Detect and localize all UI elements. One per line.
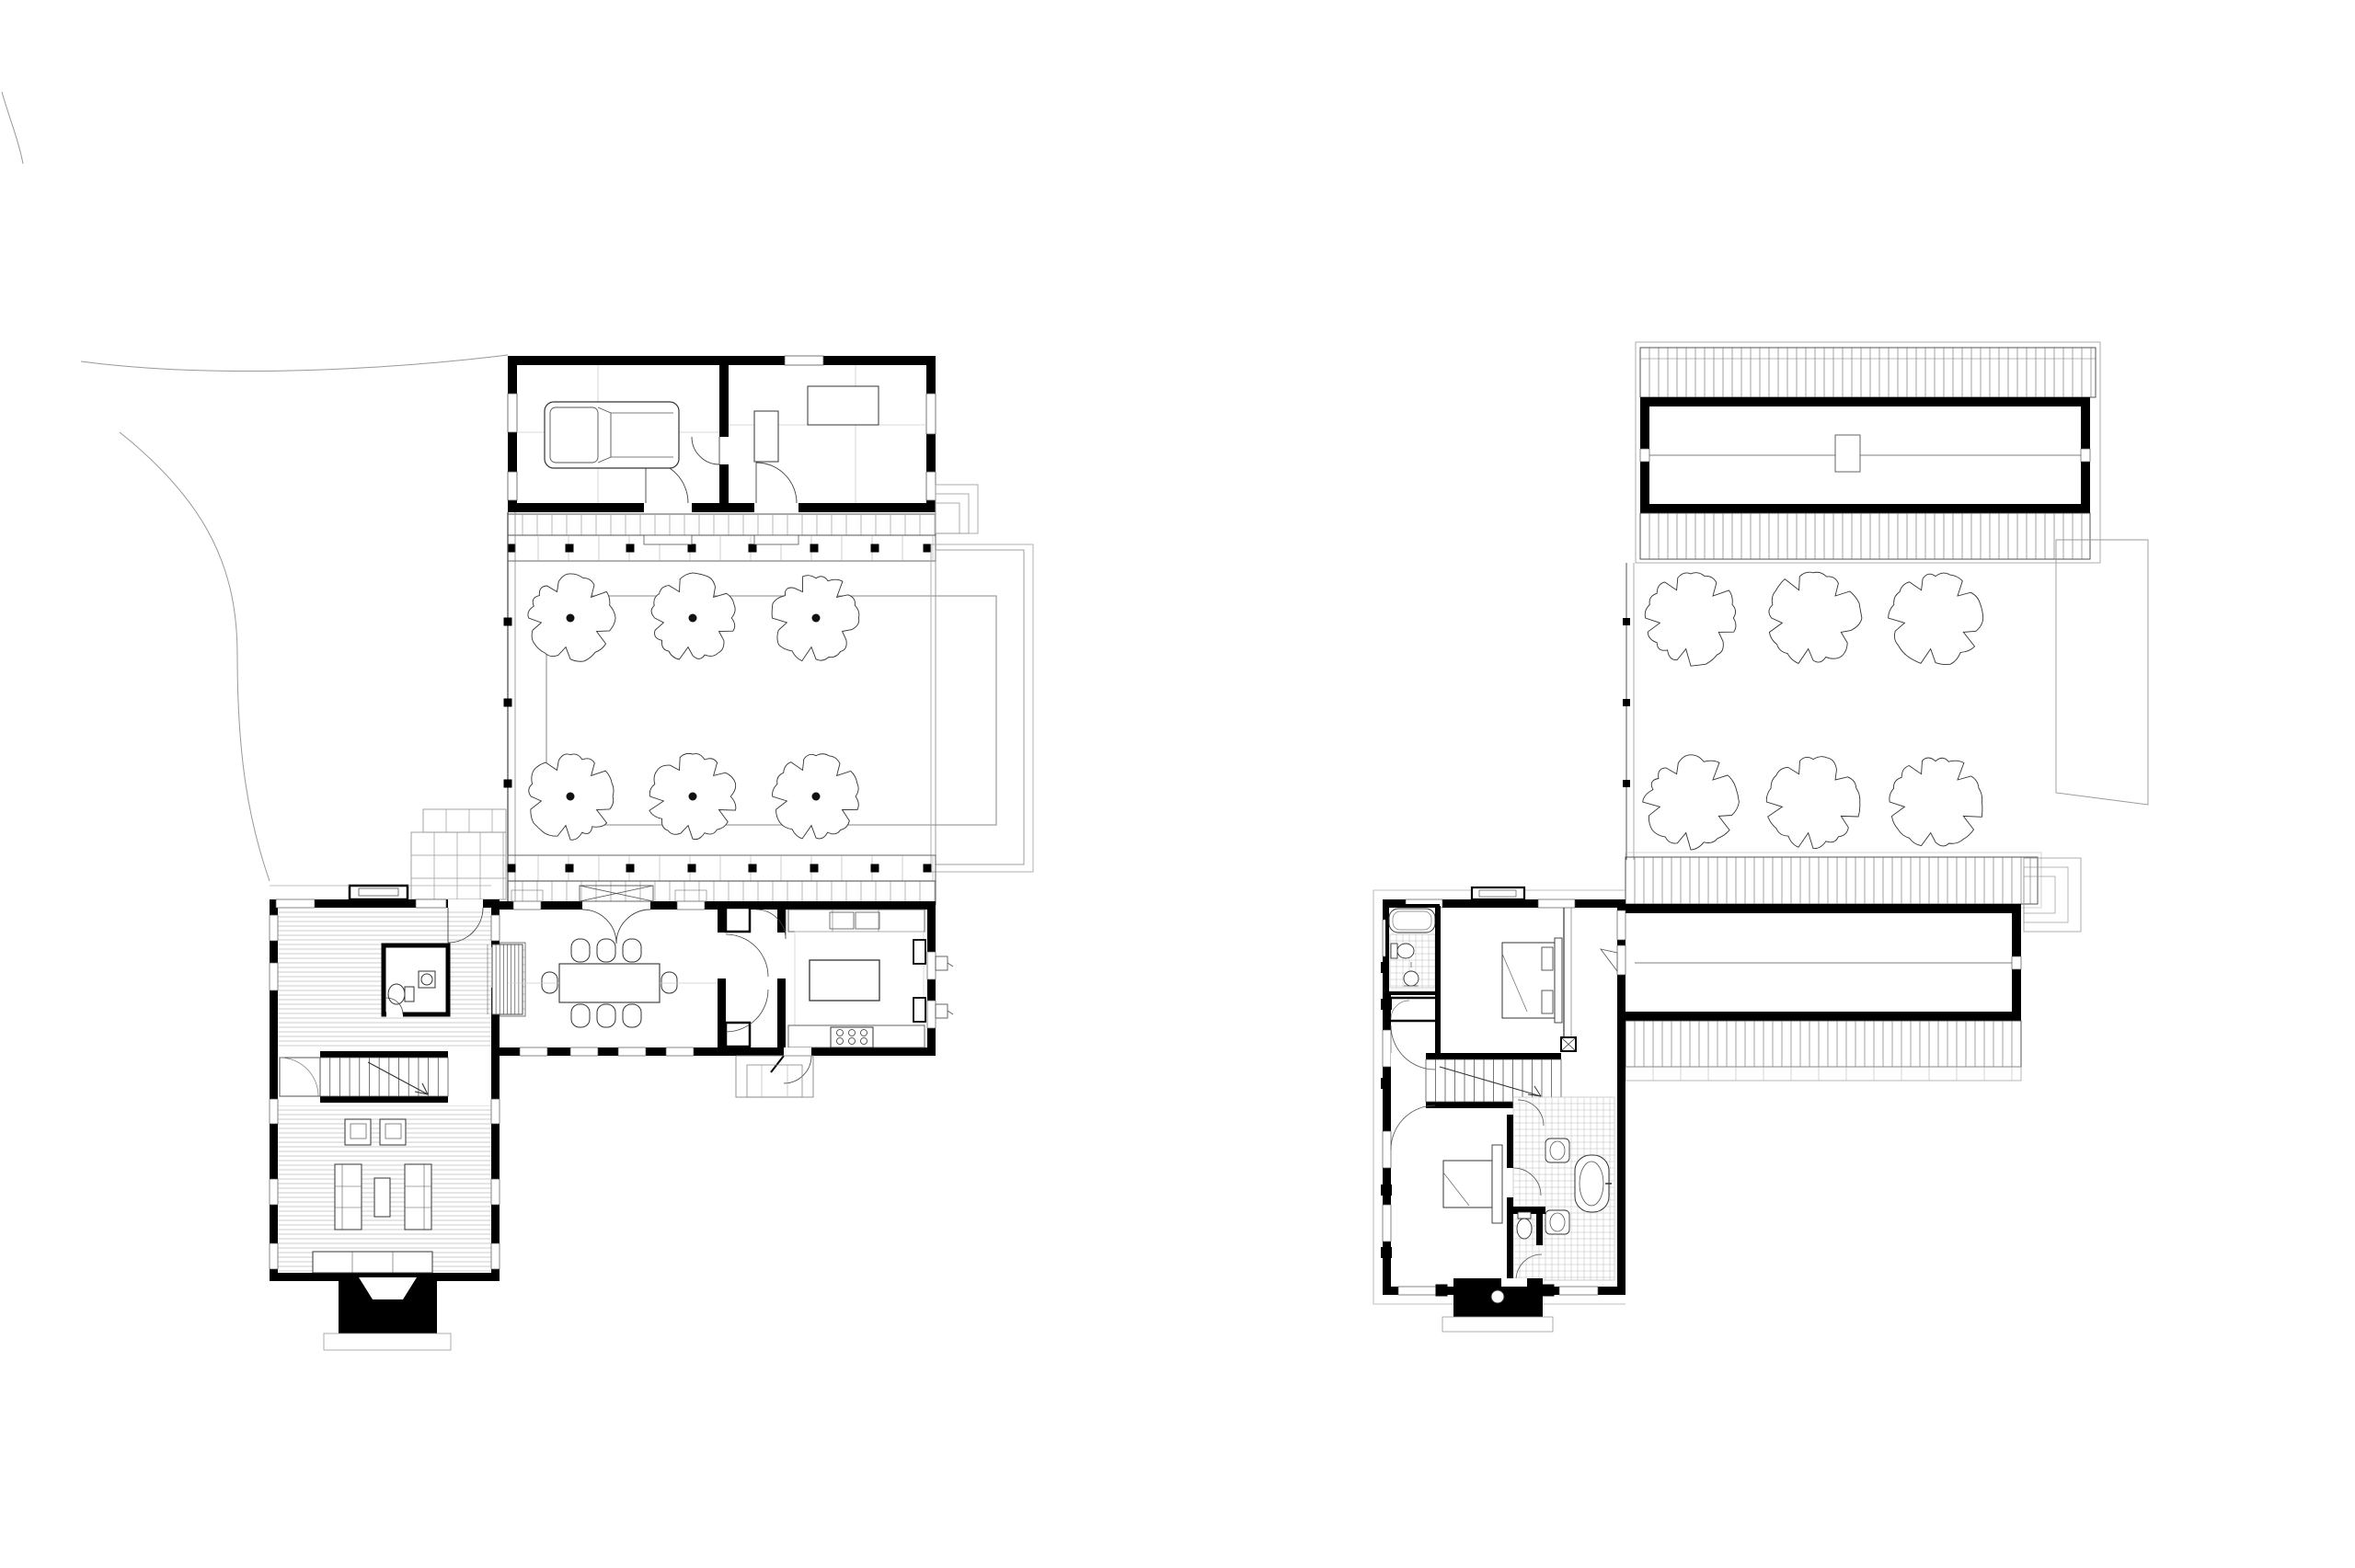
wall-pilaster [1381, 1078, 1392, 1089]
eave-band [1626, 1067, 2021, 1081]
house-window [270, 915, 278, 941]
garage-window [508, 472, 517, 500]
chimney-outline [324, 1333, 451, 1350]
house-window [270, 963, 278, 990]
dining-chair [597, 939, 615, 962]
house-window [270, 1243, 278, 1269]
exterior-steps [2024, 858, 2081, 932]
dining-chair [571, 939, 590, 962]
bathtub [1389, 909, 1435, 933]
pillow [1542, 990, 1553, 1013]
colonnade-post [810, 864, 819, 873]
chimney [1835, 435, 1860, 472]
shutter-mark [936, 1004, 948, 1018]
workshop-table [808, 386, 879, 425]
door-swing [784, 1056, 811, 1083]
terrain-contour [81, 355, 508, 372]
upper-floor-plan [1373, 342, 2148, 1332]
house-window [416, 899, 446, 908]
stair-wall [320, 1096, 448, 1103]
colonnade-post [504, 618, 512, 626]
door-threshold [644, 535, 692, 544]
garage-wall [719, 464, 729, 512]
courtyard-tree [1769, 572, 1862, 663]
colonnade-post [626, 544, 635, 553]
colonnade-post [1623, 618, 1630, 625]
courtyard-tree-trunk [689, 614, 697, 623]
sofa [335, 1164, 362, 1230]
courtyard-tree-trunk [567, 793, 575, 801]
courtyard-tree [1889, 573, 1983, 664]
closet [1387, 998, 1438, 1021]
door-opening [784, 1047, 811, 1056]
colonnade-post [924, 544, 932, 553]
colonnade-post [810, 544, 819, 553]
bedroom-window [1559, 1287, 1598, 1295]
courtyard-tree-trunk [812, 793, 821, 801]
courtyard-tree [1645, 573, 1736, 666]
gable-vent [2081, 449, 2090, 462]
terrain-contour [2, 92, 23, 164]
dining-chair [623, 1004, 641, 1027]
firebox [1501, 1278, 1527, 1287]
colonnade-post [504, 780, 512, 788]
bedroom-window [1383, 1205, 1391, 1242]
roof-slope [1640, 348, 2096, 397]
stair-wall [1426, 1053, 1561, 1059]
bathroom-wall [1536, 1210, 1543, 1245]
dining-chair [623, 939, 641, 962]
wall-pilaster [1381, 1247, 1392, 1258]
colonnade-post [749, 544, 757, 553]
door-swing [448, 908, 483, 943]
toilet-tank [1518, 1212, 1531, 1219]
house-wall [270, 899, 278, 1281]
dining-chair [597, 1004, 615, 1027]
sofa [405, 1164, 431, 1230]
dining-table [559, 964, 660, 1002]
appliance [913, 998, 925, 1022]
headboard [1492, 1145, 1502, 1223]
wing-window [927, 952, 936, 979]
bedroom-window [1383, 1030, 1391, 1067]
entry-porch [1472, 887, 1524, 899]
wing-window [513, 901, 541, 910]
bedroom-window [1617, 945, 1626, 975]
door-opening [718, 933, 726, 979]
terrain-contour [120, 432, 270, 881]
roof-slope [1640, 513, 2090, 559]
wall-pilaster [1381, 1185, 1392, 1196]
garage-wall [719, 356, 729, 437]
door-swing [582, 910, 616, 944]
colonnade-post [871, 864, 879, 873]
door-swing [1391, 1105, 1435, 1150]
colonnade-post [504, 699, 512, 707]
house-window [270, 1099, 278, 1124]
dining-chair [571, 1004, 590, 1027]
flue [1491, 1290, 1504, 1303]
door-opening [719, 437, 729, 464]
house-window [491, 915, 500, 941]
bathroom [384, 945, 448, 1014]
wing-window [666, 1047, 694, 1056]
colonnade-post [508, 864, 516, 873]
door-opening [386, 1008, 403, 1017]
courtyard-tree [1766, 757, 1860, 849]
colonnade-post [688, 544, 696, 553]
entry-porch [350, 886, 408, 899]
toilet [1397, 944, 1414, 958]
wing-window [927, 1001, 936, 1028]
shutter-tick [948, 963, 953, 967]
bed [1443, 1161, 1492, 1207]
window-box [675, 890, 706, 901]
wing-window [520, 1047, 547, 1056]
headboard [1555, 938, 1562, 1023]
courtyard-tree [1890, 758, 1982, 846]
house-window [491, 1099, 500, 1124]
wing-wall [500, 901, 936, 910]
kitchen-island [810, 960, 879, 1001]
bedroom-window [1398, 1287, 1437, 1295]
exterior-steps [936, 494, 969, 533]
drawing-sheet: Architectural floor plan sheet [0, 0, 2355, 1568]
courtyard-tree [1643, 755, 1740, 850]
garage-window [785, 356, 823, 365]
workshop-island [754, 411, 778, 462]
boardwalk [508, 514, 936, 535]
door-swing [756, 463, 797, 503]
door-opening [448, 899, 483, 908]
chimney-outline [1442, 1317, 1553, 1332]
door-opening [777, 933, 786, 979]
toilet-tank [405, 987, 414, 1001]
gable-vent [2012, 956, 2021, 969]
monitor-wall [1640, 397, 2090, 406]
colonnade-post [749, 864, 757, 873]
toilet [1517, 1219, 1532, 1239]
sink [1404, 971, 1419, 986]
door-threshold [754, 535, 798, 544]
garage-window [926, 394, 936, 434]
armchair [380, 1119, 406, 1145]
hall-closet [726, 908, 750, 932]
wing-window [570, 1047, 598, 1056]
walkway-roof-outline [1626, 853, 2041, 908]
house-window [491, 1243, 500, 1269]
exterior-steps [936, 485, 978, 533]
terrace-outline [936, 550, 1024, 864]
window-box [511, 890, 543, 901]
colonnade-post [688, 864, 696, 873]
stone-path [423, 809, 506, 832]
vanity-sink [1545, 1210, 1569, 1234]
hall-closet [726, 1023, 750, 1047]
courtyard-tree-trunk [689, 793, 697, 801]
door-swing [1391, 1001, 1409, 1019]
colonnade-post [1623, 780, 1630, 787]
dining-chair [661, 972, 677, 993]
bedroom-window [1617, 910, 1626, 940]
monitor-floor [1635, 913, 2012, 1012]
pillow [1542, 947, 1553, 970]
eave-band [1626, 1067, 2021, 1081]
toilet-tank [1391, 944, 1397, 958]
bedroom-window [1383, 1131, 1391, 1168]
kitchen-sink [830, 912, 854, 929]
wing-wall [500, 1047, 936, 1056]
terrace-outline [931, 544, 1033, 872]
door-leaf [771, 1056, 784, 1072]
bathroom-wall [1507, 1115, 1513, 1168]
casement-leaf [1601, 949, 1617, 971]
exterior-steps [936, 503, 959, 533]
gable-vent [1640, 449, 1649, 462]
door-swing [726, 934, 768, 977]
colonnade-post [566, 544, 574, 553]
door-swing [692, 437, 719, 464]
courtyard-tree-trunk [812, 614, 821, 623]
house-window [270, 1179, 278, 1205]
colonnade-post [924, 864, 932, 873]
shutter-tick [948, 1011, 953, 1014]
garage-window [508, 394, 517, 432]
monitor-wall [1626, 1012, 2021, 1021]
window-seat [313, 1252, 432, 1273]
colonnade-post [871, 544, 879, 553]
kitchen-counter [788, 910, 925, 932]
dining-chair [542, 972, 557, 993]
garage-door-opening [754, 503, 798, 512]
armchair [345, 1119, 371, 1145]
stone-path [411, 832, 506, 899]
bathtub [1575, 1155, 1609, 1212]
monitor-wall [1626, 904, 2021, 913]
garage-window [926, 472, 936, 500]
french-door-opening [582, 901, 650, 910]
terrace-outline [2056, 540, 2148, 805]
monitor-wall [1640, 504, 2090, 513]
porch-post [1543, 1285, 1555, 1297]
car [545, 402, 679, 468]
house-window [276, 899, 315, 908]
courtyard-tree-trunk [567, 614, 575, 623]
wing-window [677, 901, 705, 910]
colonnade-post [1623, 699, 1630, 706]
door-swing [616, 910, 650, 944]
kitchen-sink [856, 912, 879, 929]
ground-floor-plan [2, 92, 1033, 1350]
floor-plan-canvas [0, 0, 2355, 1568]
appliance [913, 940, 925, 964]
porch-post [1436, 1285, 1448, 1297]
house-window [491, 1179, 500, 1205]
roof-slope [1626, 1021, 2021, 1067]
garage-door-opening [644, 503, 692, 512]
vanity-sink [1545, 1139, 1569, 1162]
walkway-roof [1626, 857, 2038, 904]
stair-wall [320, 1051, 448, 1058]
bedroom-window [1538, 899, 1575, 908]
colonnade-post [508, 544, 516, 553]
colonnade-post [626, 864, 635, 873]
colonnade-post [566, 864, 574, 873]
wing-window [618, 1047, 646, 1056]
coffee-table [374, 1178, 390, 1217]
bathroom-wall [1435, 906, 1441, 1053]
kitchen-porch [747, 1065, 802, 1097]
shutter-mark [936, 956, 948, 970]
